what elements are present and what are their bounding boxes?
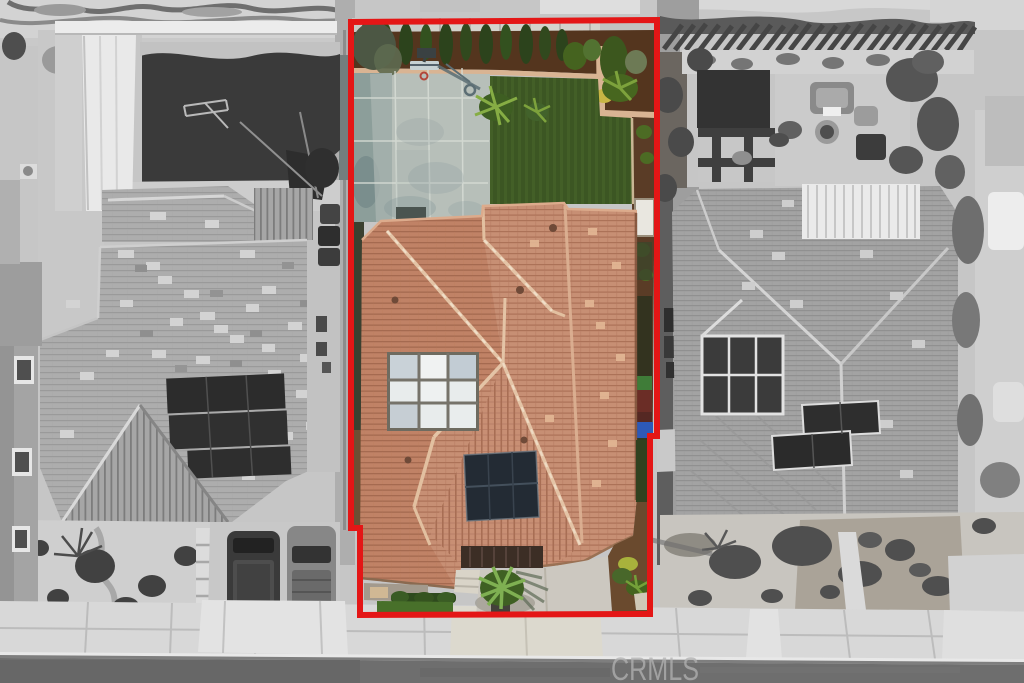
svg-text:CRMLS: CRMLS (611, 651, 699, 683)
